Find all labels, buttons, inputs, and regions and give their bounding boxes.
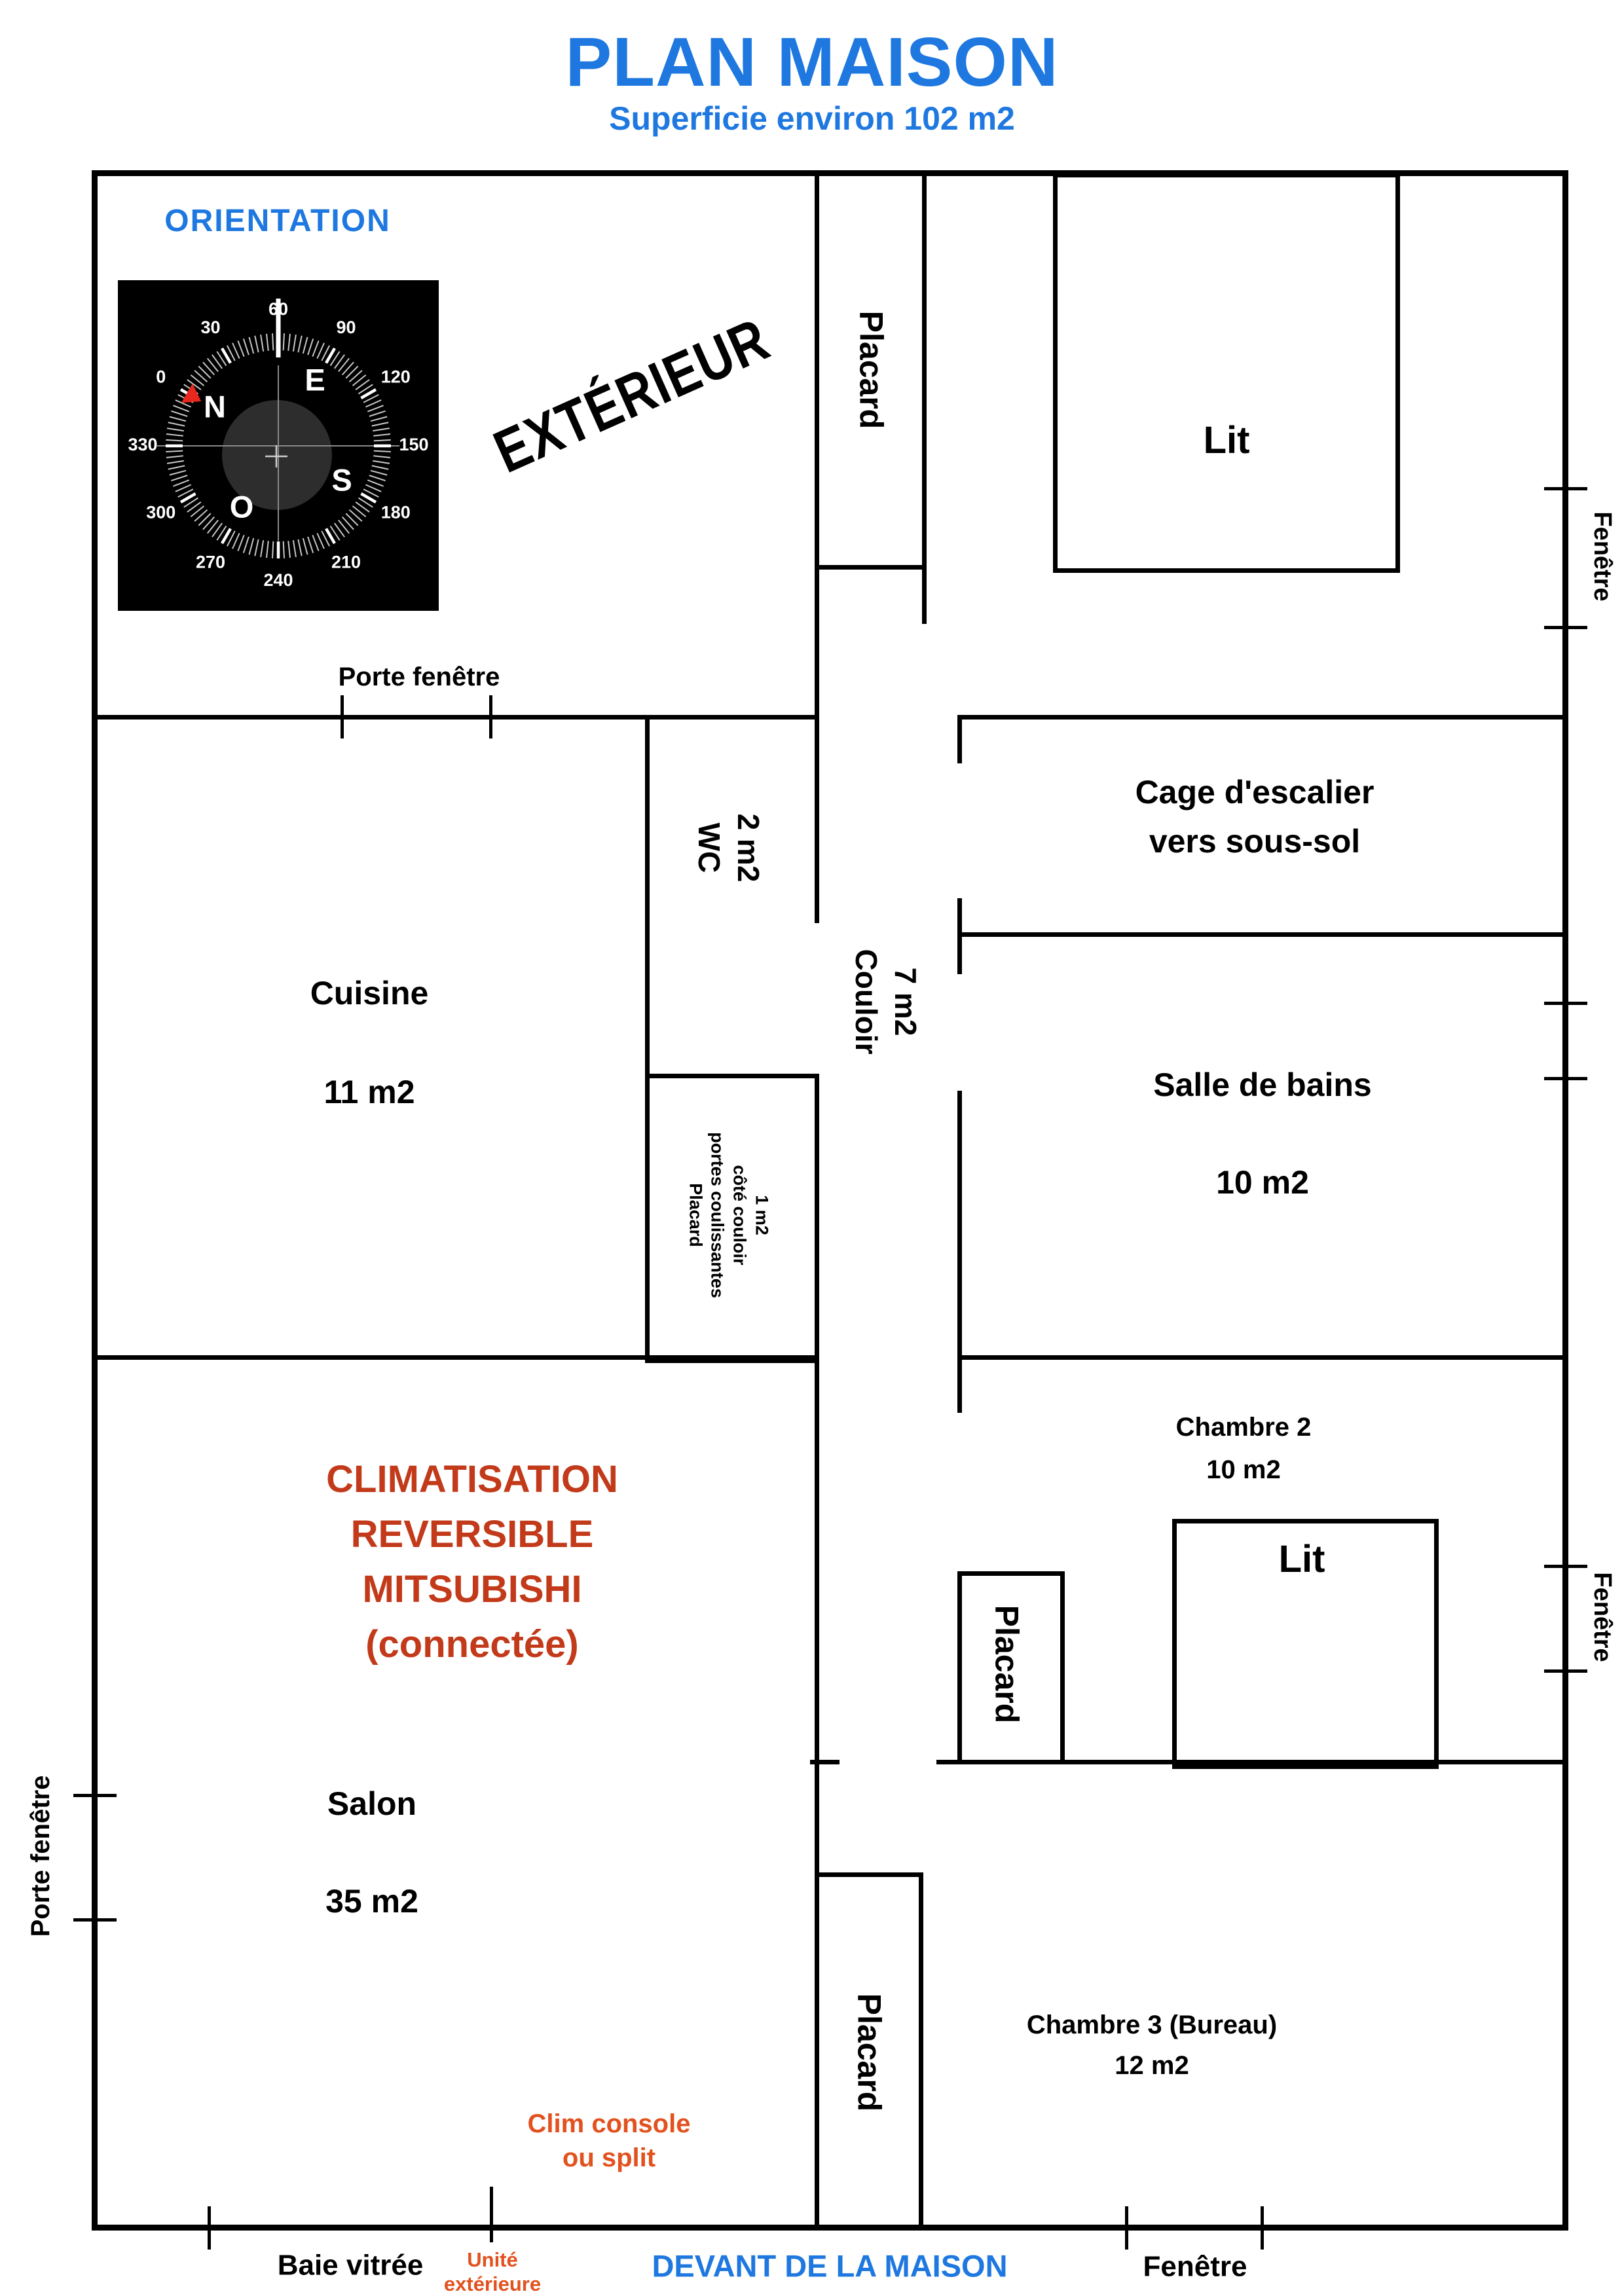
placard-coulissant-label: Placard portes coulissantes côté couloir… (684, 1132, 773, 1298)
devant-maison-label: DEVANT DE LA MAISON (652, 2248, 1007, 2286)
fenetre-chambre1-tick-bottom (1544, 626, 1587, 629)
salon-label: Salon (327, 1783, 416, 1825)
wall-cage-bas (957, 932, 1568, 937)
fenetre-chambre2-tick-bottom (1544, 1669, 1587, 1673)
cage-escalier-label: Cage d'escalier vers sous-sol (1135, 768, 1375, 866)
porte-fenetre-salon-label: Porte fenêtre (24, 1776, 57, 1937)
wall-couloir-gauche-2 (815, 570, 819, 923)
svg-text:300: 300 (146, 503, 175, 522)
cuisine-area: 11 m2 (323, 1072, 415, 1113)
svg-text:210: 210 (331, 552, 361, 572)
fenetre-sdb-tick-bottom (1544, 1077, 1587, 1080)
svg-text:330: 330 (128, 435, 157, 454)
fenetre-chambre2-label: Fenêtre (1586, 1572, 1617, 1662)
svg-text:240: 240 (263, 570, 293, 590)
placard-haut-label: Placard (851, 311, 892, 429)
placard-chambre3-label: Placard (849, 1994, 890, 2112)
baie-vitree-tick-left (208, 2206, 211, 2250)
chambre3-area: 12 m2 (1115, 2049, 1189, 2082)
fenetre-chambre2-tick-top (1544, 1565, 1587, 1568)
porte-fenetre-salon-tick-bottom (73, 1918, 117, 1922)
fenetre-chambre3-tick-right (1261, 2206, 1264, 2250)
fenetre-chambre3-tick-left (1125, 2206, 1128, 2250)
svg-text:90: 90 (336, 318, 356, 337)
unite-exterieure-tick (490, 2187, 493, 2242)
compass-icon: 0306090120150180210240270300330NESO (118, 280, 439, 611)
chambre2-area: 10 m2 (1206, 1453, 1280, 1486)
wall-couloir-gauche-1 (815, 170, 819, 570)
porte-fenetre-salon-tick-top (73, 1794, 117, 1797)
wall-sdb-bas (957, 1355, 1568, 1360)
svg-text:O: O (230, 489, 254, 524)
wall-cage-haut (957, 715, 1568, 720)
lit1-label: Lit (1204, 417, 1250, 465)
porte-fenetre-haut-tick-right (489, 695, 492, 738)
svg-text:270: 270 (196, 552, 225, 572)
floor-plan: PLAN MAISON Superficie environ 102 m2 OR… (0, 0, 1624, 2296)
unite-exterieure-label: Unité extérieure (444, 2248, 541, 2296)
wall-placard-haut-bas (815, 565, 927, 570)
wall-couloir-droite-3 (957, 1091, 962, 1413)
wall-couloir-droite-2 (957, 898, 962, 974)
svg-text:0: 0 (156, 367, 166, 387)
wall-chambre1-gauche (922, 170, 927, 624)
wall-wc-gauche (645, 715, 650, 1078)
placard-chambre2-label: Placard (986, 1605, 1027, 1724)
wall-couloir-droite-1 (957, 715, 962, 763)
fenetre-chambre1-tick-top (1544, 487, 1587, 490)
clim-console-label: Clim console ou split (528, 2107, 691, 2175)
sdb-label: Salle de bains (1153, 1065, 1371, 1106)
wall-porte-fenetre-haut (92, 715, 819, 720)
climatisation-label: CLIMATISATION REVERSIBLE MITSUBISHI (con… (326, 1452, 618, 1672)
svg-text:30: 30 (200, 318, 220, 337)
page-title: PLAN MAISON (566, 19, 1059, 106)
porte-fenetre-haut-label: Porte fenêtre (339, 661, 500, 693)
salon-area: 35 m2 (325, 1881, 418, 1922)
lit1-box (1053, 173, 1400, 573)
wc-label: WC 2 m2 (689, 814, 767, 883)
fenetre-sdb-tick-top (1544, 1002, 1587, 1005)
svg-text:S: S (331, 462, 352, 497)
svg-text:120: 120 (381, 367, 411, 387)
sdb-area: 10 m2 (1216, 1162, 1309, 1203)
svg-text:150: 150 (399, 435, 428, 454)
svg-text:E: E (304, 362, 325, 397)
porte-fenetre-haut-tick-left (341, 695, 344, 738)
fenetre-chambre3-label: Fenêtre (1143, 2249, 1247, 2285)
page-subtitle: Superficie environ 102 m2 (609, 98, 1015, 139)
chambre2-label: Chambre 2 (1176, 1411, 1312, 1444)
orientation-label: ORIENTATION (164, 202, 391, 241)
svg-text:N: N (204, 389, 226, 424)
baie-vitree-label: Baie vitrée (278, 2248, 424, 2284)
fenetre-chambre1-label: Fenêtre (1586, 511, 1617, 601)
exterieur-label: EXTÉRIEUR (483, 302, 781, 490)
svg-text:180: 180 (381, 503, 411, 522)
couloir-label: Couloir 7 m2 (846, 949, 925, 1055)
cuisine-label: Cuisine (310, 973, 429, 1014)
chambre3-label: Chambre 3 (Bureau) (1027, 2009, 1277, 2041)
lit2-label: Lit (1279, 1536, 1325, 1584)
wall-outer-right (1562, 170, 1568, 2231)
